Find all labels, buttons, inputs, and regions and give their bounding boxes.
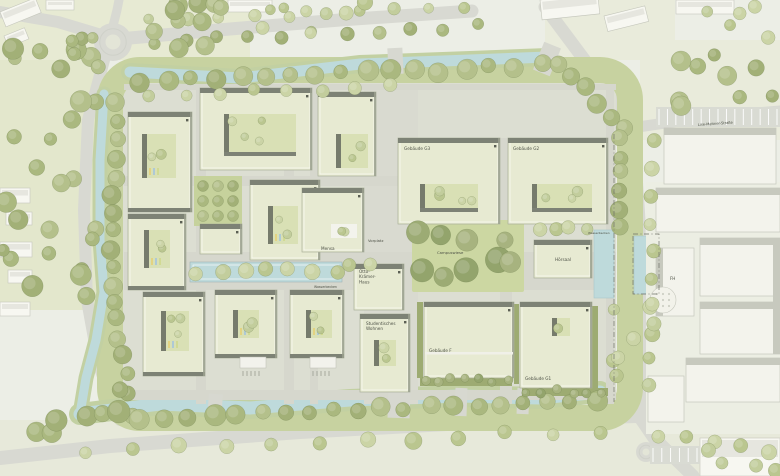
label-fh: FH [670, 276, 675, 281]
tree-highlight [618, 121, 627, 130]
tree-highlight [79, 289, 89, 299]
tree-highlight [122, 368, 130, 376]
tree-highlight [67, 36, 74, 43]
roof-edge-right [590, 302, 592, 388]
site-plan-figure: Gebäude G3Gebäude G2Gebäude G1Gebäude FH… [0, 0, 780, 476]
tree-highlight [276, 217, 280, 221]
tree-highlight [157, 241, 161, 245]
tree-highlight [65, 112, 75, 122]
tree-highlight [433, 227, 444, 238]
tree-highlight [149, 154, 153, 158]
tree-highlight [383, 61, 394, 72]
tree-highlight [43, 248, 51, 256]
roof-edge-right [408, 314, 410, 392]
tree-highlight [284, 231, 289, 236]
roof-band-top [302, 188, 364, 193]
tree-highlight [459, 61, 470, 72]
tree-highlight [499, 426, 507, 434]
roof-edge-right [590, 240, 592, 278]
courtyard-shadow-band [144, 230, 149, 268]
tree-highlight [115, 347, 125, 357]
roof-band-top [128, 112, 192, 117]
tree-highlight [446, 374, 451, 379]
tree-highlight [430, 65, 441, 76]
entrance-mark [236, 231, 238, 233]
tree-highlight [198, 38, 208, 48]
tree-highlight [537, 389, 542, 394]
tree-highlight [613, 131, 622, 140]
courtyard-stripe [279, 234, 281, 241]
courtyard-stripe [313, 328, 315, 335]
label-f: Gebäude F [429, 348, 452, 353]
tree-highlight [405, 23, 412, 30]
tree-highlight [691, 60, 700, 69]
tree-highlight [609, 305, 615, 311]
context-roof-shadow [230, 2, 270, 6]
tree-highlight [709, 436, 717, 444]
roof-edge-right [310, 88, 312, 170]
roof-band-top [200, 224, 242, 229]
tree-highlight [260, 263, 268, 271]
roof-band-top [398, 138, 500, 143]
building-f [424, 302, 514, 378]
tree-highlight [171, 40, 182, 51]
tree-highlight [475, 375, 480, 380]
tree-highlight [69, 49, 76, 56]
tree-highlight [282, 263, 290, 271]
tree-highlight [643, 380, 651, 388]
tree-highlight [34, 45, 43, 54]
tree-highlight [280, 406, 289, 415]
right-campus-building [700, 238, 780, 296]
roof-edge-right [240, 224, 242, 254]
tree-highlight [647, 299, 655, 307]
courtyard-shadow-band [268, 206, 273, 244]
tree-highlight [199, 182, 205, 188]
label-g2: Gebäude G2 [513, 146, 540, 151]
tree-highlight [242, 134, 246, 138]
courtyard-stripe [149, 168, 151, 175]
label-mensa: Mensa [321, 246, 335, 251]
right-campus-building [664, 128, 776, 184]
tree-highlight [653, 431, 660, 438]
tree-highlight [114, 383, 123, 392]
tree-highlight [648, 245, 656, 253]
entrance-mark [180, 221, 182, 223]
courtyard-stripe [176, 341, 178, 348]
tree-highlight [256, 138, 261, 143]
tree-highlight [605, 111, 614, 120]
plaza-dot [662, 305, 664, 307]
tree-highlight [436, 187, 441, 192]
tree-highlight [185, 72, 193, 80]
tree-highlight [157, 412, 167, 422]
tree-highlight [314, 438, 322, 446]
tree-highlight [284, 69, 292, 77]
tree-highlight [266, 439, 273, 446]
site-plan: Gebäude G3Gebäude G2Gebäude G1Gebäude FH… [0, 0, 780, 476]
tree-highlight [543, 195, 548, 200]
tree-highlight [583, 225, 589, 231]
tree-highlight [548, 430, 555, 437]
tree-highlight [397, 404, 405, 412]
hedge [417, 302, 423, 378]
tree-highlight [106, 279, 117, 290]
tree-highlight [452, 432, 460, 440]
tree-highlight [229, 118, 234, 123]
tree-highlight [502, 254, 514, 266]
tree-highlight [53, 62, 63, 72]
courtyard-shadow-band [336, 134, 341, 168]
tree-highlight [569, 195, 573, 199]
label-g1: Gebäude G1 [525, 376, 552, 381]
building-mid-small [200, 224, 242, 254]
tree-highlight [215, 89, 222, 96]
tree-highlight [318, 327, 322, 331]
context-roof-shadow [48, 2, 72, 5]
tree-highlight [446, 398, 457, 409]
tree-highlight [360, 62, 372, 74]
tree-highlight [349, 155, 353, 159]
tree-highlight [613, 220, 622, 229]
tree-highlight [362, 433, 371, 442]
tree-highlight [770, 465, 778, 473]
tree-highlight [615, 153, 623, 161]
tree-highlight [564, 70, 574, 80]
tree-highlight [763, 32, 771, 40]
tree-highlight [468, 197, 473, 202]
tree-highlight [228, 407, 239, 418]
plaza-dot [668, 305, 670, 307]
tree-highlight [177, 315, 182, 320]
tree-highlight [328, 403, 336, 411]
entrance-mark [404, 321, 406, 323]
tree-highlight [436, 269, 447, 280]
tree-highlight [409, 223, 422, 236]
tree-highlight [553, 385, 558, 390]
tree-highlight [307, 68, 317, 78]
roof-band-top [143, 292, 205, 297]
tree-highlight [208, 72, 219, 83]
tree-highlight [103, 242, 113, 252]
courtyard-stripe [159, 258, 161, 265]
tree-highlight [573, 187, 579, 193]
tree-highlight [109, 311, 118, 320]
entrance-mark [370, 99, 372, 101]
entrance-mark [338, 297, 340, 299]
plaza-dot [662, 299, 664, 301]
tree-highlight [425, 4, 431, 10]
tree-highlight [460, 3, 466, 9]
tree-highlight [536, 56, 545, 65]
context-roof-shadow [10, 272, 30, 277]
roof-band-top [215, 290, 277, 295]
tree-highlight [380, 344, 386, 350]
courtyard-stripe [168, 341, 170, 348]
context-building [0, 302, 30, 316]
tree-highlight [719, 68, 730, 79]
tree-highlight [285, 13, 291, 19]
context-roof-shadow [2, 304, 28, 309]
roof-edge-right [362, 188, 364, 252]
tree-highlight [72, 266, 84, 278]
tree-highlight [389, 4, 396, 11]
tree-highlight [79, 408, 90, 419]
tree-highlight [750, 61, 759, 70]
tree-highlight [751, 460, 758, 467]
tree-highlight [646, 274, 653, 281]
tree-highlight [8, 131, 16, 139]
tree-highlight [735, 8, 742, 15]
tree-highlight [505, 377, 510, 382]
tree-highlight [767, 91, 774, 98]
tree-highlight [190, 268, 198, 276]
tree-highlight [30, 161, 39, 170]
tree-highlight [488, 379, 493, 384]
roof-band-bottom [143, 372, 205, 376]
tree-highlight [199, 212, 205, 218]
tree-highlight [422, 377, 427, 382]
plaza-dot [662, 293, 664, 295]
tree-highlight [281, 86, 288, 93]
tree-highlight [132, 75, 143, 86]
tree-highlight [109, 152, 119, 162]
tree-highlight [214, 197, 220, 203]
tree-highlight [703, 7, 709, 13]
tree-highlight [304, 407, 312, 415]
courtyard-band-below [420, 208, 478, 212]
tree-highlight [81, 448, 88, 455]
courtyard-shadow-band [233, 310, 238, 338]
entrance-mark [494, 145, 496, 147]
label-hoersaal: Hörsaal [555, 257, 571, 262]
tree-highlight [161, 73, 172, 84]
label-line: Haus [359, 279, 370, 284]
tree-highlight [276, 32, 283, 39]
courtyard-stripe [157, 168, 159, 175]
roof-edge-right [190, 112, 192, 212]
tree-highlight [240, 264, 249, 273]
tree-highlight [108, 261, 116, 269]
tree-highlight [221, 441, 229, 449]
tree-highlight [578, 79, 588, 89]
tree-highlight [517, 397, 525, 405]
tree-highlight [54, 176, 64, 186]
tree-highlight [673, 98, 684, 109]
building-nw-a [128, 112, 192, 212]
tree-highlight [648, 318, 656, 326]
tree-highlight [645, 191, 653, 199]
tree-highlight [107, 223, 115, 231]
tree-highlight [212, 32, 219, 39]
roundabout-island [106, 35, 121, 50]
tree-highlight [310, 313, 315, 318]
label-wasserbecken_right: Wasserbecken [588, 231, 610, 235]
courtyard-shadow-band [532, 184, 537, 208]
tree-highlight [598, 390, 603, 395]
tree-highlight [10, 212, 21, 223]
tree-highlight [229, 212, 235, 218]
roof-edge-right [374, 92, 376, 176]
tree-highlight [215, 1, 224, 10]
courtyard-stripe [172, 341, 174, 348]
label-vorplatz: Vorplatz [368, 238, 383, 243]
tree-highlight [373, 399, 384, 410]
tree-highlight [644, 353, 651, 360]
tree-highlight [259, 118, 263, 122]
right-campus-roof-bar [700, 302, 780, 309]
roof-edge-right [606, 138, 608, 224]
roundabout-island [643, 449, 650, 456]
tree-highlight [180, 411, 190, 421]
tree-highlight [175, 331, 179, 335]
courtyard-stripe [151, 258, 153, 265]
tree-highlight [374, 27, 381, 34]
tree-highlight [157, 150, 163, 156]
tree-highlight [413, 261, 426, 274]
tree-highlight [563, 222, 571, 230]
garage-entry-chip [310, 357, 336, 368]
tree-highlight [207, 406, 219, 418]
tree-highlight [112, 133, 121, 142]
tree-highlight [709, 50, 716, 57]
roof-band-bottom [128, 208, 192, 212]
tree-highlight [43, 223, 53, 233]
right-campus-roof-bar [686, 358, 780, 365]
tree-highlight [612, 203, 622, 213]
tree-highlight [383, 355, 388, 360]
tree-highlight [673, 53, 684, 64]
roof-edge-right [342, 290, 344, 358]
courtyard-stripe [155, 258, 157, 265]
tree-highlight [266, 6, 272, 12]
entrance-mark [306, 95, 308, 97]
tree-highlight [482, 60, 490, 68]
tree-highlight [734, 92, 742, 100]
tree-highlight [110, 402, 123, 415]
tree-highlight [45, 134, 52, 141]
entrance-mark [271, 297, 273, 299]
tree-highlight [145, 15, 151, 21]
tree-highlight [365, 259, 372, 266]
tree-highlight [217, 266, 226, 275]
roof-band-top [128, 214, 186, 219]
right-campus-roof-bar [664, 128, 776, 135]
roof-edge-right [512, 302, 514, 378]
road [113, 0, 119, 26]
tree-highlight [595, 428, 602, 435]
roof-band-top [290, 290, 344, 295]
tree-highlight [456, 260, 470, 274]
entrance-mark [586, 247, 588, 249]
tree-highlight [302, 7, 308, 13]
roof-band-top [250, 180, 320, 185]
right-campus-roof-bar [773, 238, 780, 354]
plaza-dot [668, 293, 670, 295]
tree-highlight [318, 86, 325, 93]
roof-band-top [534, 240, 592, 245]
tree-highlight [87, 233, 95, 241]
tree-highlight [352, 405, 361, 414]
building-n-slab [200, 88, 312, 170]
tree-highlight [681, 432, 688, 439]
right-campus-building [700, 302, 780, 354]
label-g3: Gebäude G3 [404, 146, 431, 151]
right-campus-roof-bar [656, 188, 780, 195]
parking-lot [650, 446, 700, 464]
tree-highlight [649, 135, 657, 143]
tree-highlight [110, 172, 119, 181]
path [124, 84, 616, 90]
tree-highlight [703, 444, 711, 452]
tree-highlight [306, 265, 315, 274]
courtyard-shadow-band [142, 134, 147, 178]
courtyard-stripe [275, 234, 277, 241]
tree-highlight [458, 231, 470, 243]
tree-highlight [498, 233, 507, 242]
tree-highlight [4, 40, 16, 52]
building-footprint [424, 302, 514, 378]
courtyard-shadow-band [161, 311, 166, 351]
entrance-mark [508, 309, 510, 311]
tree-highlight [332, 267, 340, 275]
tree-highlight [24, 277, 36, 289]
building-w-b [128, 214, 186, 290]
tree-highlight [128, 444, 135, 451]
entrance-mark [358, 195, 360, 197]
right-campus-roof-bar [700, 238, 780, 245]
tree-highlight [551, 224, 558, 231]
plaza-dot [668, 299, 670, 301]
tree-highlight [96, 407, 105, 416]
tree-highlight [473, 19, 479, 25]
tree-highlight [72, 93, 84, 105]
tree-highlight [235, 68, 246, 79]
tree-highlight [717, 458, 724, 465]
hedge [514, 304, 519, 384]
tree-highlight [523, 390, 527, 394]
tree-highlight [88, 33, 94, 39]
courtyard-stripe [240, 328, 242, 335]
roof-band-top [360, 314, 410, 319]
tree-highlight [29, 424, 40, 435]
tree-highlight [199, 197, 205, 203]
tree-highlight [112, 116, 120, 124]
roof-edge-right [203, 292, 205, 376]
entrance-mark [186, 119, 188, 121]
tree-highlight [214, 182, 220, 188]
tree-highlight [473, 400, 482, 409]
tree-highlight [589, 96, 600, 107]
tree-highlight [257, 406, 265, 414]
courtyard-band-below [532, 208, 592, 212]
tree-highlight [628, 333, 636, 341]
tree-highlight [107, 95, 117, 105]
building-s-m2 [290, 290, 344, 358]
courtyard-shadow-band [420, 184, 425, 208]
tree-highlight [172, 439, 181, 448]
roof-edge-right [498, 138, 500, 224]
tree-highlight [92, 61, 100, 69]
tree-highlight [763, 446, 772, 455]
tree-highlight [89, 222, 98, 231]
tree-highlight [611, 370, 619, 378]
roof-band-top [520, 302, 592, 307]
roof-edge-right [184, 214, 186, 290]
garage-entry-chip [240, 357, 266, 368]
building-sw [143, 292, 205, 376]
tree-highlight [280, 4, 286, 10]
